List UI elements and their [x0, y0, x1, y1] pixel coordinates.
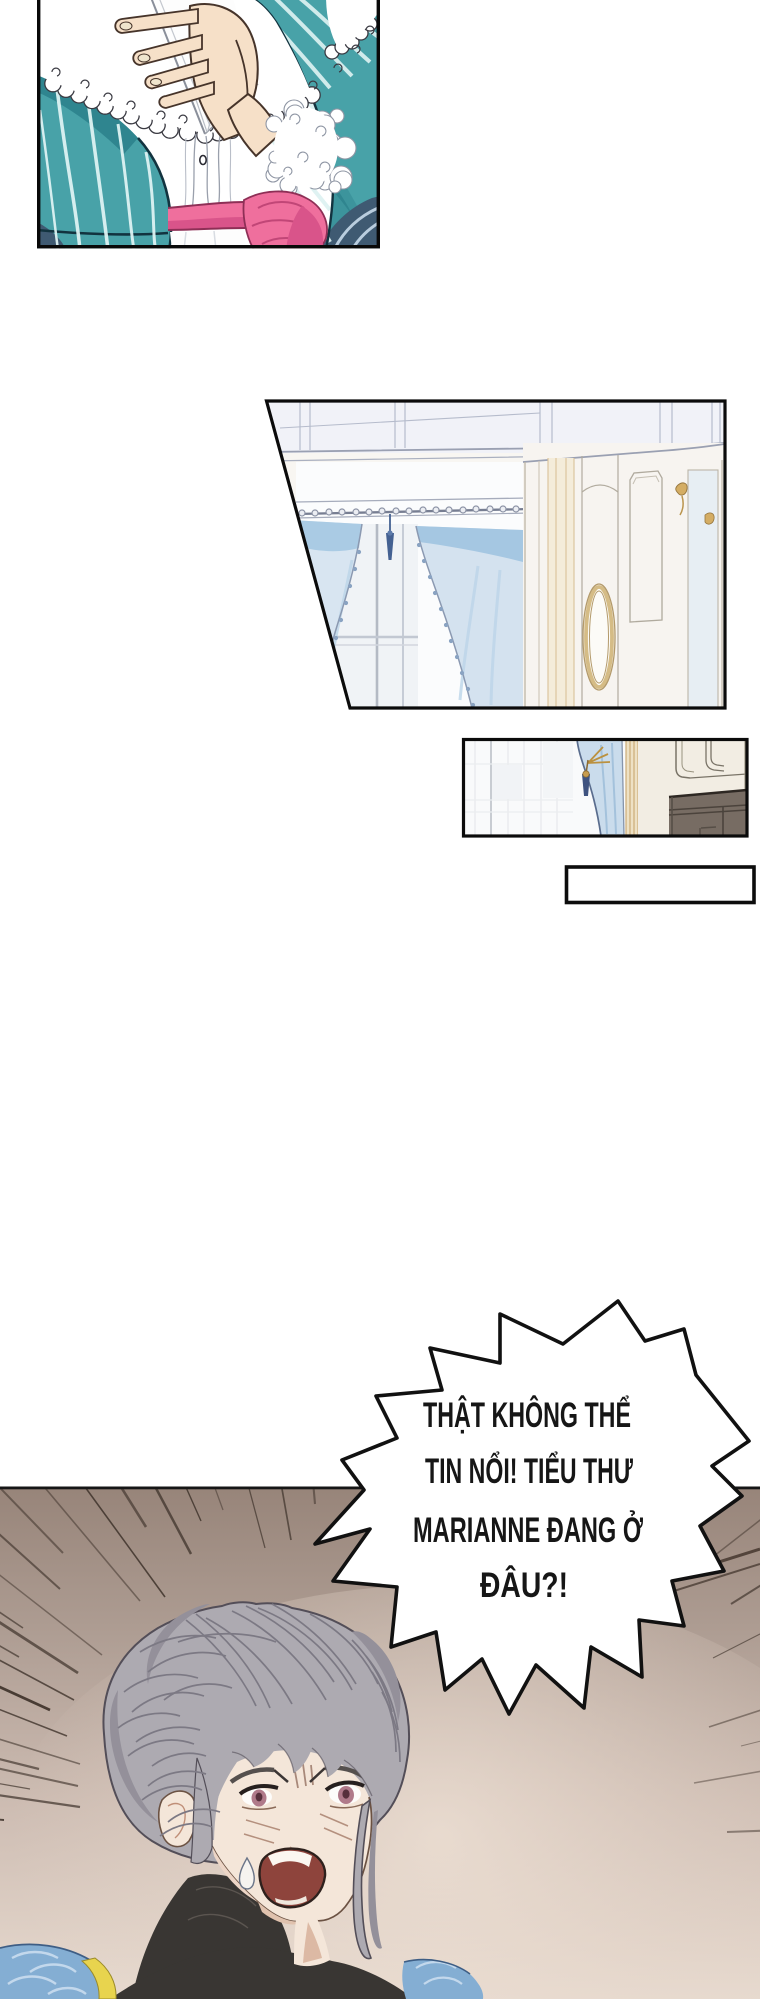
svg-text:MARIANNE ĐANG Ở: MARIANNE ĐANG Ở: [413, 1510, 643, 1550]
svg-text:ĐÂU?!: ĐÂU?!: [480, 1565, 568, 1605]
svg-text:TIN NỔI! TIỂU THƯ: TIN NỔI! TIỂU THƯ: [425, 1451, 634, 1491]
svg-text:THẬT KHÔNG THỂ: THẬT KHÔNG THỂ: [423, 1395, 631, 1435]
